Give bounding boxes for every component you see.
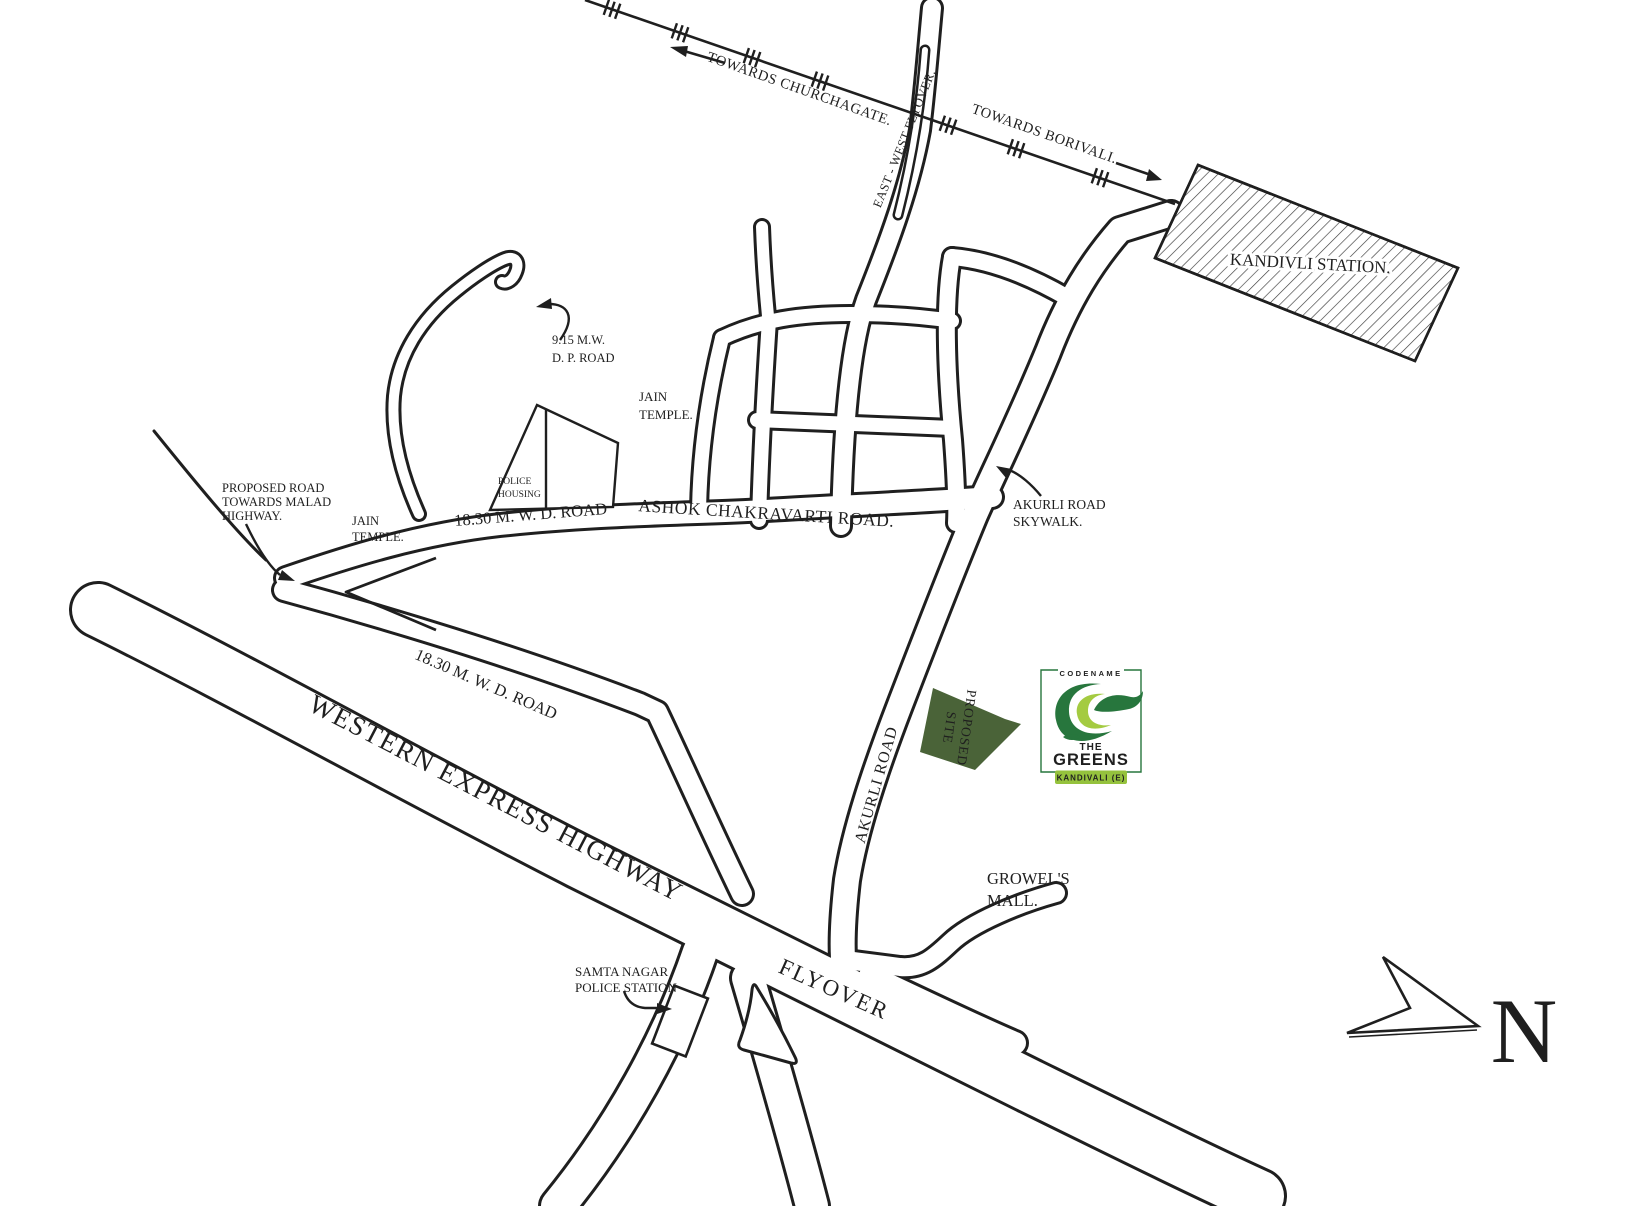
svg-text:HOUSING: HOUSING xyxy=(498,490,541,500)
railway-line: TOWARDS CHURCHAGATE. TOWARDS BORIVALI. E… xyxy=(585,0,1175,210)
the-greens-logo: CODENAME THE GREENS KANDIVALI (E) xyxy=(1041,669,1143,784)
svg-text:POLICE: POLICE xyxy=(498,477,531,487)
svg-text:AKURLI ROAD: AKURLI ROAD xyxy=(1013,497,1106,512)
svg-text:JAIN: JAIN xyxy=(639,389,668,404)
north-label: N xyxy=(1491,980,1557,1082)
svg-text:D. P. ROAD: D. P. ROAD xyxy=(552,351,615,365)
towards-borivali-label: TOWARDS BORIVALI. xyxy=(970,101,1120,167)
jain-temple-east-label: JAIN TEMPLE. xyxy=(639,389,693,422)
western-express-highway-label: WESTERN EXPRESS HIGHWAY xyxy=(304,688,688,907)
borivali-arrow xyxy=(1116,163,1162,181)
kandivli-station: KANDIVLI STATION. xyxy=(1155,165,1458,361)
svg-text:HIGHWAY.: HIGHWAY. xyxy=(222,509,282,523)
svg-text:PROPOSED ROAD: PROPOSED ROAD xyxy=(222,481,324,495)
akurli-skywalk-label: AKURLI ROAD SKYWALK. xyxy=(1013,497,1106,529)
proposed-road-malad-label: PROPOSED ROAD TOWARDS MALAD HIGHWAY. xyxy=(222,481,331,523)
greens-crescent-icon xyxy=(1055,683,1143,740)
svg-text:POLICE STATION: POLICE STATION xyxy=(575,980,677,995)
jain-temple-west-label: JAIN TEMPLE. xyxy=(352,514,404,544)
svg-text:GROWEL'S: GROWEL'S xyxy=(987,869,1070,888)
svg-text:SKYWALK.: SKYWALK. xyxy=(1013,514,1082,529)
samta-nagar-label: SAMTA NAGAR POLICE STATION xyxy=(575,964,677,995)
towards-churchgate-label: TOWARDS CHURCHAGATE. xyxy=(705,49,894,129)
location-map: TOWARDS CHURCHAGATE. TOWARDS BORIVALI. E… xyxy=(0,0,1652,1206)
logo-codename: CODENAME xyxy=(1060,669,1123,678)
north-arrow-icon xyxy=(1347,957,1478,1033)
logo-badge-text: KANDIVALI (E) xyxy=(1057,774,1126,783)
proposed-site: PROPOSED SITE xyxy=(920,686,1021,771)
map-canvas: TOWARDS CHURCHAGATE. TOWARDS BORIVALI. E… xyxy=(0,0,1652,1206)
svg-text:MALL.: MALL. xyxy=(987,891,1038,910)
svg-text:TEMPLE.: TEMPLE. xyxy=(352,530,404,544)
svg-text:TOWARDS MALAD: TOWARDS MALAD xyxy=(222,495,331,509)
svg-text:TEMPLE.: TEMPLE. xyxy=(639,407,693,422)
svg-text:SAMTA NAGAR: SAMTA NAGAR xyxy=(575,964,669,979)
logo-greens: GREENS xyxy=(1053,751,1129,769)
samta-police-building xyxy=(652,986,708,1057)
compass: N xyxy=(1347,957,1557,1082)
svg-text:JAIN: JAIN xyxy=(352,514,379,528)
svg-text:9.15 M.W.: 9.15 M.W. xyxy=(552,333,605,347)
